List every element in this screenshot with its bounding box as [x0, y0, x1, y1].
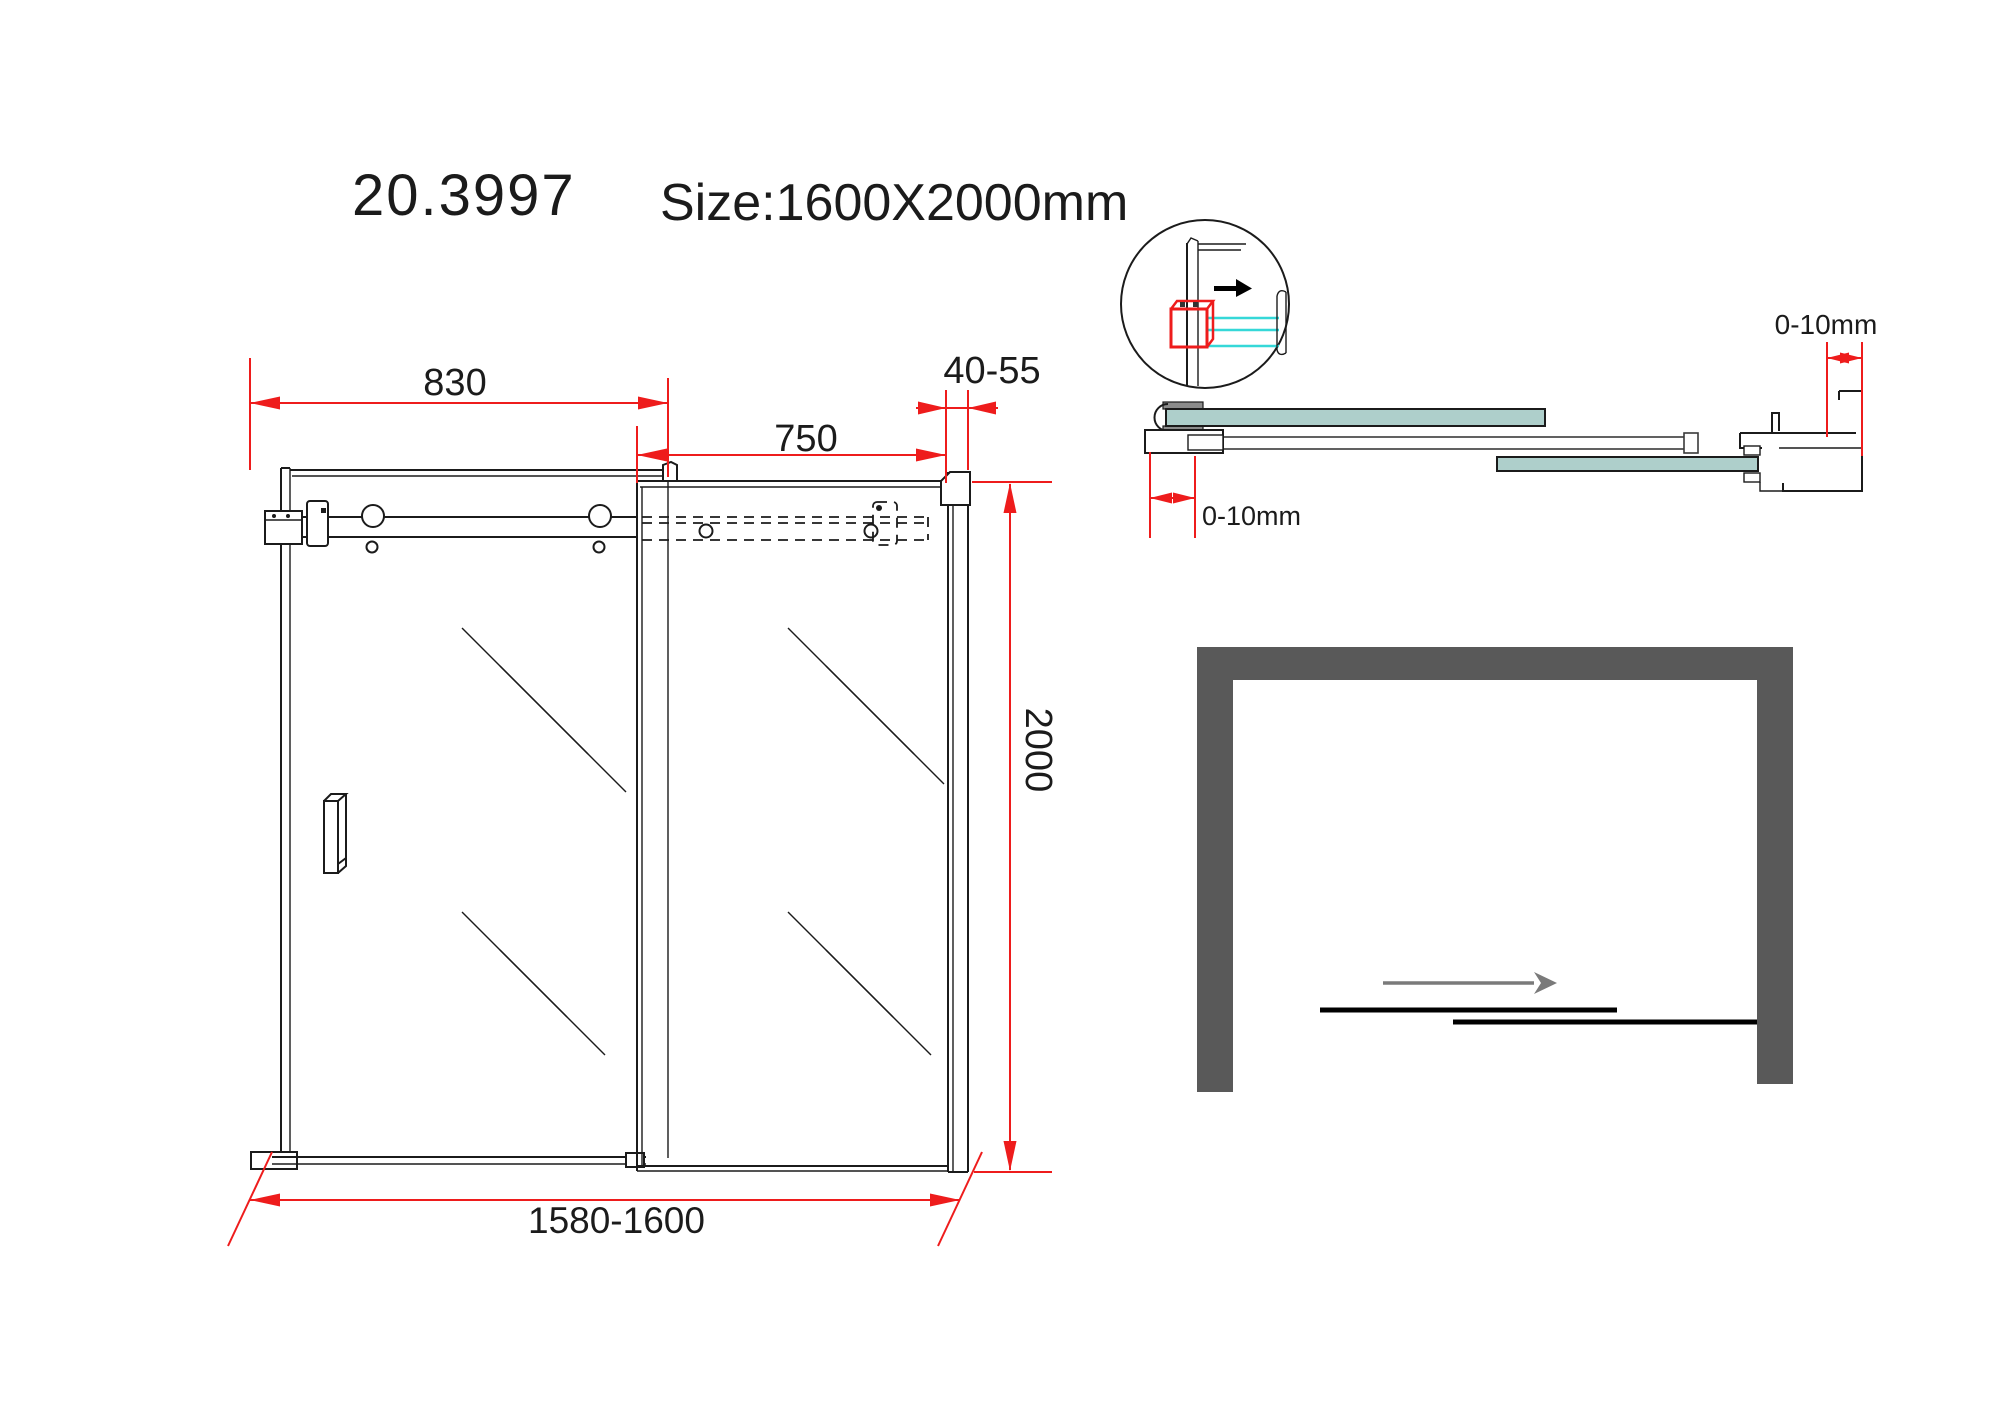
fixed-panel-glass-section: [1155, 402, 1546, 433]
door-glass-section: [1497, 457, 1758, 471]
dim-0-10-bracket: [1150, 452, 1195, 538]
dim-830-label: 830: [400, 364, 510, 404]
technical-drawing-page: { "title": { "model": "20.3997", "size":…: [0, 0, 2000, 1414]
wall-left: [1197, 647, 1233, 1092]
right-wall-profile: [941, 472, 970, 1172]
door-handle: [324, 794, 346, 873]
adjustment-bracket-section: [1145, 430, 1223, 453]
dim-0-10mm-bracket-label: 0-10mm: [1202, 502, 1301, 530]
elevation-dimensions: [228, 358, 1052, 1246]
wall-top: [1197, 647, 1793, 680]
door-slide-arrow-icon: [1383, 972, 1557, 994]
wall-right: [1757, 647, 1793, 1084]
glass-reflections: [462, 628, 944, 1055]
top-track: [265, 501, 928, 553]
size-label: Size:1600X2000mm: [660, 176, 1128, 231]
fixed-panel: [290, 462, 677, 1158]
plan-view: [1197, 647, 1793, 1092]
dim-750-label: 750: [751, 420, 861, 460]
dim-0-10mm-wall-label: 0-10mm: [1770, 310, 1882, 339]
front-elevation-drawing: [251, 462, 970, 1172]
dim-2000-label: 2000: [1017, 695, 1057, 805]
bottom-threshold: [272, 1153, 646, 1167]
sliding-panel: [637, 481, 948, 1171]
wall-profile-section: [1740, 391, 1862, 491]
dim-0-10-wall: [1827, 342, 1862, 456]
left-wall-profile: [251, 468, 297, 1169]
dim-1580-1600-label: 1580-1600: [528, 1202, 694, 1241]
dim-40-55-label: 40-55: [926, 352, 1058, 392]
dim-2000: [972, 482, 1052, 1172]
detail-circle: [1121, 220, 1289, 388]
track-bar-section: [1190, 433, 1698, 453]
model-number-label: 20.3997: [352, 166, 576, 227]
